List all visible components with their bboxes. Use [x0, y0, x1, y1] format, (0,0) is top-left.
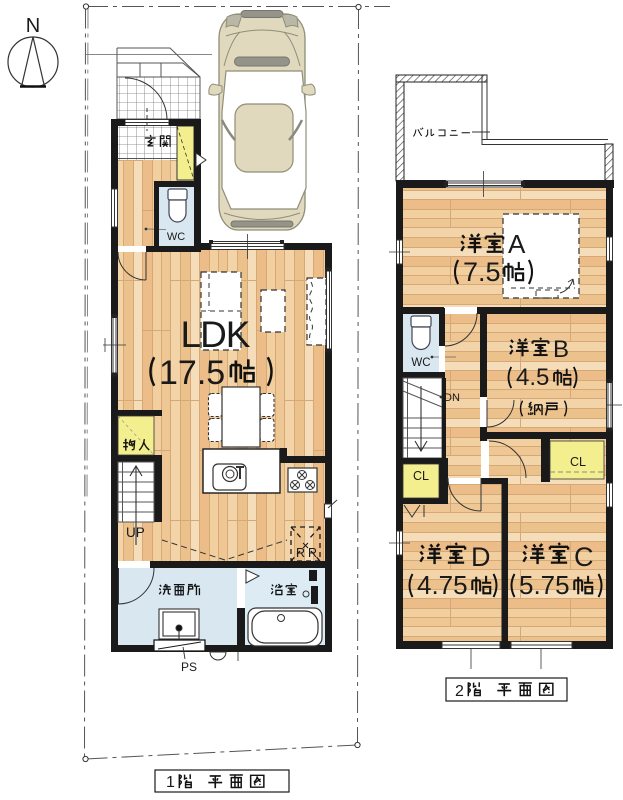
svg-text:WC: WC — [167, 231, 185, 243]
svg-text:UP: UP — [126, 525, 145, 540]
svg-text:D: D — [471, 542, 491, 572]
svg-text:WC: WC — [411, 357, 430, 369]
svg-text:DN: DN — [444, 392, 460, 404]
svg-text:A: A — [508, 229, 526, 259]
svg-text:7.5: 7.5 — [463, 257, 501, 287]
svg-text:2: 2 — [455, 683, 464, 700]
svg-text:RR: RR — [296, 546, 320, 560]
svg-text:4.75: 4.75 — [417, 570, 468, 600]
svg-text:LDK: LDK — [181, 314, 251, 355]
svg-text:PS: PS — [181, 660, 197, 674]
svg-text:CL: CL — [570, 455, 586, 469]
svg-text:B: B — [553, 336, 569, 363]
svg-text:N: N — [26, 15, 40, 37]
svg-text:1: 1 — [166, 774, 175, 791]
svg-text:4.5: 4.5 — [516, 364, 549, 391]
svg-text:CL: CL — [413, 469, 429, 483]
svg-text:C: C — [574, 542, 594, 572]
svg-text:17.5: 17.5 — [159, 354, 225, 392]
svg-text:5.75: 5.75 — [519, 570, 570, 600]
